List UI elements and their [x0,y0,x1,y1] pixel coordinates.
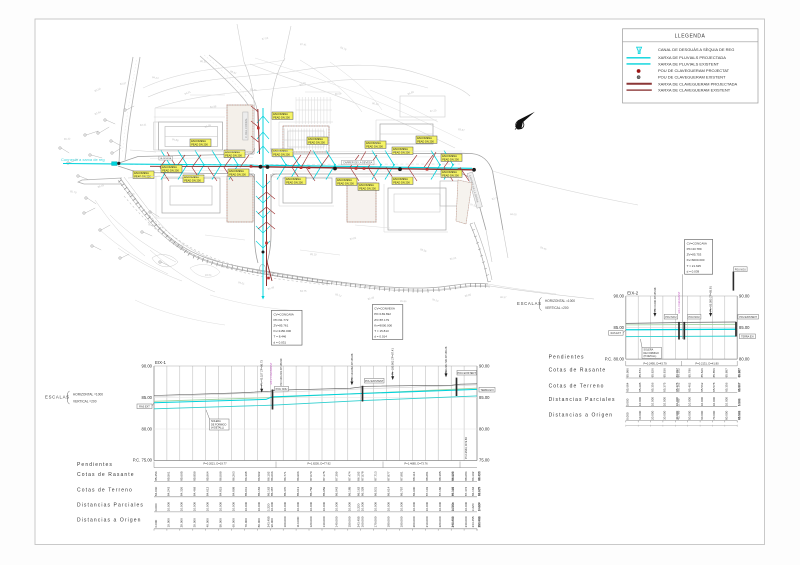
svg-text:RAS EXT: RAS EXT [139,406,150,409]
svg-text:Pk=43.327 ZP=86.73: Pk=43.327 ZP=86.73 [260,360,264,386]
svg-text:85.578: 85.578 [712,382,716,392]
svg-text:EIX-2 CREUAMENT: EIX-2 CREUAMENT [270,362,273,384]
svg-text:10.000: 10.000 [231,502,235,512]
svg-text:85.00: 85.00 [142,395,153,400]
svg-text:T = 15.813: T = 15.813 [374,329,389,333]
svg-text:(H DETALL): (H DETALL) [644,355,657,358]
svg-text:90.00: 90.00 [479,363,490,368]
svg-text:POU DE CLAVEGUERAM PROJECTAT: POU DE CLAVEGUERAM PROJECTAT [658,68,730,73]
svg-text:XARXA DE PLUVIALS PROJECTADA: XARXA DE PLUVIALS PROJECTADA [658,55,726,60]
svg-text:50.000: 50.000 [218,518,222,528]
svg-text:80.00: 80.00 [142,426,153,431]
svg-text:86.102: 86.102 [676,368,680,378]
svg-text:84.75: 84.75 [300,289,307,293]
svg-text:TERRA EXI: TERRA EXI [741,336,754,339]
svg-text:ZV=85.761: ZV=85.761 [274,324,289,328]
svg-text:86.102: 86.102 [267,471,271,481]
svg-text:243.455: 243.455 [267,516,271,527]
svg-text:85.867: 85.867 [738,382,742,392]
svg-text:85.356: 85.356 [650,382,654,392]
svg-text:50.000: 50.000 [688,410,692,420]
svg-text:XARXA DE CLAVEGUERAM PROJECTAD: XARXA DE CLAVEGUERAM PROJECTADA [658,81,738,86]
svg-text:87.309: 87.309 [335,471,339,481]
svg-text:243.455: 243.455 [471,516,475,527]
svg-text:30.000: 30.000 [193,518,197,528]
svg-text:CARRER DE LA DEVESA: CARRER DE LA DEVESA [343,162,373,165]
svg-text:85.986: 85.986 [626,368,630,378]
svg-text:Cotas de Terreno: Cotas de Terreno [77,487,133,493]
svg-text:190.000: 190.000 [399,516,403,527]
svg-text:Cotas de Rasante: Cotas de Rasante [77,472,135,478]
svg-text:P=0.2131, D=41.80: P=0.2131, D=41.80 [695,361,719,365]
svg-text:86.102: 86.102 [451,471,455,481]
svg-text:75.00: 75.00 [479,458,490,463]
svg-text:84.469: 84.469 [193,486,197,496]
svg-text:P=1.4685, D=73.76: P=1.4685, D=73.76 [404,462,428,466]
svg-text:PEAD DN 200: PEAD DN 200 [184,178,201,182]
svg-text:86.042: 86.042 [335,486,339,496]
svg-text:60.000: 60.000 [700,410,704,420]
svg-text:70.000: 70.000 [244,518,248,528]
svg-text:85.859: 85.859 [193,471,197,481]
svg-text:T = 8.446: T = 8.446 [274,335,287,339]
svg-text:80.00: 80.00 [479,426,490,431]
svg-text:3.220: 3.220 [357,503,361,511]
svg-text:PEAD DN 200: PEAD DN 200 [134,174,151,178]
svg-text:86.162: 86.162 [267,486,271,496]
svg-text:PK=91.772: PK=91.772 [274,318,289,322]
svg-text:POU NOU: POU NOU [735,269,746,272]
svg-text:43.789: 43.789 [676,410,680,420]
svg-text:PEAD DN 200: PEAD DN 200 [442,157,459,161]
svg-text:0.000: 0.000 [154,519,158,527]
svg-text:Pk=180.002 ZP=87.41: Pk=180.002 ZP=87.41 [391,348,395,375]
svg-text:30.000: 30.000 [663,410,667,420]
svg-text:10.000: 10.000 [206,502,210,512]
svg-text:70.000: 70.000 [712,410,716,420]
svg-text:85.887: 85.887 [725,368,729,378]
svg-text:Pk=100.219 ZP=86.90: Pk=100.219 ZP=86.90 [279,358,283,385]
svg-text:85.356: 85.356 [725,382,729,392]
svg-text:85.613: 85.613 [296,486,300,496]
svg-text:40.000: 40.000 [206,518,210,528]
svg-text:10.000: 10.000 [386,502,390,512]
svg-text:10.000: 10.000 [638,397,642,407]
svg-text:120.000: 120.000 [309,516,313,527]
svg-text:86.368: 86.368 [244,471,248,481]
svg-text:87.070: 87.070 [309,471,313,481]
svg-text:86.53: 86.53 [128,192,135,196]
svg-text:84.815: 84.815 [218,486,222,496]
svg-text:PEAD DN 200: PEAD DN 200 [191,142,208,146]
svg-text:3.789: 3.789 [676,398,680,406]
svg-text:85.295: 85.295 [638,382,642,392]
svg-text:87.186: 87.186 [438,486,442,496]
svg-text:86.102: 86.102 [471,471,475,481]
svg-text:253.455: 253.455 [478,516,482,527]
svg-text:10.000: 10.000 [257,502,261,512]
svg-text:Distancias a Origen: Distancias a Origen [549,412,614,418]
svg-text:85.856: 85.856 [712,368,716,378]
svg-text:P.C. 75.00: P.C. 75.00 [133,458,153,463]
svg-text:P=0.2495, D=43.79: P=0.2495, D=43.79 [643,361,667,365]
svg-text:XARXA DE CLAVEGUERAM EXISTENT: XARXA DE CLAVEGUERAM EXISTENT [658,88,731,93]
svg-text:10.000: 10.000 [373,502,377,512]
svg-text:20.000: 20.000 [650,410,654,420]
svg-text:85.00: 85.00 [614,325,625,330]
svg-text:85.826: 85.826 [700,368,704,378]
svg-text:P=2.3543, D=9.64: P=2.3543, D=9.64 [464,437,468,459]
svg-text:EIX-2: EIX-2 [627,290,639,295]
svg-text:85.19: 85.19 [310,252,317,256]
svg-text:Pendientes: Pendientes [77,462,113,468]
svg-text:87.578: 87.578 [361,471,365,481]
svg-text:CV=CONCAVA: CV=CONCAVA [274,312,294,316]
svg-text:10.000: 10.000 [167,518,171,528]
svg-text:87.20: 87.20 [430,108,437,113]
svg-text:XARXA DE PLUVIALS EXISTENT: XARXA DE PLUVIALS EXISTENT [658,61,719,66]
svg-text:POU NOU: POU NOU [276,388,288,391]
svg-text:3.220: 3.220 [451,503,455,511]
svg-text:Kv=1150.000: Kv=1150.000 [274,329,292,333]
svg-text:84.612: 84.612 [206,486,210,496]
svg-text:243.455: 243.455 [357,516,361,527]
svg-text:170.000: 170.000 [373,516,377,527]
svg-text:84.31: 84.31 [140,123,147,127]
svg-text:83.64: 83.64 [205,273,212,277]
svg-text:Kv=9000.000: Kv=9000.000 [374,323,392,327]
svg-text:85.756: 85.756 [309,486,313,496]
svg-text:0.000: 0.000 [626,398,630,406]
svg-text:PEAD DN 200: PEAD DN 200 [366,144,383,148]
svg-text:85.375: 85.375 [663,382,667,392]
svg-text:140.000: 140.000 [335,516,339,527]
svg-text:86.162: 86.162 [451,486,455,496]
svg-text:86.906: 86.906 [296,471,300,481]
svg-text:86.328: 86.328 [361,486,365,496]
svg-text:PEAD DN 200: PEAD DN 200 [229,172,246,176]
svg-text:85.00: 85.00 [479,395,490,400]
svg-text:3.220: 3.220 [267,503,271,511]
svg-text:86.099: 86.099 [218,471,222,481]
svg-text:d = 0.031: d = 0.031 [274,340,287,344]
svg-text:20.000: 20.000 [180,518,184,528]
svg-text:86.162: 86.162 [357,486,361,496]
svg-text:210.000: 210.000 [425,516,429,527]
svg-text:90.00: 90.00 [739,293,750,298]
svg-text:EIX-1: EIX-1 [155,360,167,365]
svg-text:PEAD DN 200: PEAD DN 200 [273,152,290,156]
svg-text:10.000: 10.000 [193,502,197,512]
svg-text:PEAD DN 200: PEAD DN 200 [162,168,179,172]
svg-text:84.243: 84.243 [167,486,171,496]
svg-text:80.000: 80.000 [257,518,261,528]
svg-text:85.907: 85.907 [738,368,742,378]
svg-text:88.281: 88.281 [425,471,429,481]
svg-text:85.959: 85.959 [322,486,326,496]
svg-text:POU NOU: POU NOU [665,316,676,319]
svg-text:85.826: 85.826 [650,368,654,378]
svg-text:10.000: 10.000 [244,502,248,512]
svg-text:86.162: 86.162 [471,486,475,496]
svg-text:80.000: 80.000 [725,410,729,420]
svg-text:HORIZONTAL =1000: HORIZONTAL =1000 [73,393,103,397]
svg-text:Cotas de Rasante: Cotas de Rasante [549,368,607,374]
svg-text:85.184: 85.184 [257,486,261,496]
svg-text:Pk=0.000 ZP=85.98: Pk=0.000 ZP=85.98 [653,287,657,311]
svg-text:10.000: 10.000 [425,502,429,512]
svg-text:240.000: 240.000 [464,516,468,527]
svg-text:60.000: 60.000 [231,518,235,528]
svg-text:85.456: 85.456 [154,471,158,481]
svg-text:POU EXISTENT: POU EXISTENT [739,316,757,319]
svg-text:Pendientes: Pendientes [549,355,585,361]
svg-text:86.757: 86.757 [399,486,403,496]
svg-text:220.000: 220.000 [438,516,442,527]
svg-text:87.175: 87.175 [322,471,326,481]
svg-text:Connexió a xarxa de reg: Connexió a xarxa de reg [61,157,105,162]
svg-text:P.C. 80.00: P.C. 80.00 [605,356,625,361]
svg-text:85.796: 85.796 [688,368,692,378]
svg-text:87.472: 87.472 [464,486,468,496]
svg-text:150.000: 150.000 [348,516,352,527]
svg-text:87.41: 87.41 [300,42,307,47]
svg-text:10.000: 10.000 [348,502,352,512]
svg-text:86.531: 86.531 [373,486,377,496]
svg-text:90.00: 90.00 [142,363,153,368]
svg-text:ZV=87.179: ZV=87.179 [374,318,389,322]
svg-text:84.326: 84.326 [180,486,184,496]
svg-text:0.000: 0.000 [154,503,158,511]
svg-text:Cotas de Terreno: Cotas de Terreno [549,383,605,389]
svg-text:CANAL DE DESGUÀS A SÈQUIA DE R: CANAL DE DESGUÀS A SÈQUIA DE REG [658,47,734,52]
svg-text:EIX-1 CREUAMENT: EIX-1 CREUAMENT [678,291,681,313]
svg-text:84.898: 84.898 [231,486,235,496]
svg-text:100.000: 100.000 [283,516,287,527]
svg-text:88.116: 88.116 [412,471,416,480]
svg-text:PEAD DN 200: PEAD DN 200 [359,186,376,190]
svg-text:85.462: 85.462 [688,382,692,392]
svg-text:85.695: 85.695 [180,471,184,481]
svg-text:90.00: 90.00 [614,293,625,298]
svg-text:POU EXISTENT: POU EXISTENT [365,380,384,383]
svg-text:C. DEL CORRAL: C. DEL CORRAL [244,118,248,138]
svg-text:ESCALAS: ESCALAS [517,301,542,306]
svg-text:ZV=85.753: ZV=85.753 [687,253,702,257]
svg-text:86.30: 86.30 [200,59,207,64]
svg-text:85.470: 85.470 [283,486,287,496]
svg-text:85.561: 85.561 [167,471,171,481]
svg-text:HORIZONTAL =1000: HORIZONTAL =1000 [545,299,575,303]
svg-text:10.000: 10.000 [167,502,171,512]
svg-text:10.000: 10.000 [412,502,416,512]
svg-text:85.041: 85.041 [244,486,248,496]
svg-text:RAS EXT: RAS EXT [611,332,622,335]
svg-text:87.713: 87.713 [373,471,377,481]
svg-text:88.385: 88.385 [438,471,442,481]
svg-text:87.103: 87.103 [425,486,429,496]
svg-text:Distancias Parciales: Distancias Parciales [549,397,616,403]
svg-text:POU NOU: POU NOU [689,316,700,319]
svg-text:10.000: 10.000 [712,397,716,407]
svg-text:LA DEVESA: LA DEVESA [160,157,172,160]
svg-text:2.450: 2.450 [478,503,482,511]
svg-text:88.423: 88.423 [478,471,482,481]
svg-text:Kv=6000.000: Kv=6000.000 [687,258,705,262]
svg-text:243.455: 243.455 [451,516,455,527]
svg-text:85.836: 85.836 [663,368,667,378]
svg-text:10.000: 10.000 [180,502,184,512]
svg-text:10.000: 10.000 [438,502,442,512]
svg-text:200.000: 200.000 [412,516,416,527]
svg-text:86.97: 86.97 [500,295,507,299]
svg-text:85.684: 85.684 [626,382,630,392]
svg-text:VERTICAL =200: VERTICAL =200 [545,306,569,310]
svg-text:LLEGENDA: LLEGENDA [675,34,706,40]
svg-text:10.000: 10.000 [650,397,654,407]
svg-text:10.000: 10.000 [309,502,313,512]
svg-text:86.185: 86.185 [348,486,352,496]
svg-text:PK=169.692: PK=169.692 [374,312,391,316]
svg-text:PK=43.789: PK=43.789 [687,247,702,251]
svg-text:10.000: 10.000 [322,502,326,512]
svg-text:PEAD DN 200: PEAD DN 200 [286,180,303,184]
svg-text:0.000: 0.000 [626,412,630,420]
svg-text:110.000: 110.000 [296,516,300,527]
svg-text:86.162: 86.162 [676,382,680,392]
svg-text:10.000: 10.000 [399,502,403,512]
svg-text:87.877: 87.877 [386,471,390,481]
svg-text:POU EXISTENT: POU EXISTENT [458,372,477,375]
svg-text:86.614: 86.614 [386,486,390,496]
svg-text:84.08: 84.08 [510,212,517,216]
svg-text:85.562: 85.562 [700,382,704,392]
svg-text:PEAD DN 200: PEAD DN 200 [308,140,325,144]
svg-text:PEAD DN 200: PEAD DN 200 [417,139,434,143]
svg-text:86.102: 86.102 [357,471,361,481]
svg-text:85.86: 85.86 [400,299,407,303]
svg-text:84.040: 84.040 [154,486,158,496]
svg-text:Pk=103.882 ZP=86.86: Pk=103.882 ZP=86.86 [350,353,354,380]
svg-text:d = 0.039: d = 0.039 [687,269,700,273]
svg-text:80.00: 80.00 [739,356,750,361]
svg-text:86.502: 86.502 [257,471,261,481]
svg-text:88.684: 88.684 [464,471,468,481]
svg-text:10.000: 10.000 [700,397,704,407]
svg-text:87.474: 87.474 [348,471,352,481]
svg-text:PEAD DN 200: PEAD DN 200 [273,115,290,119]
svg-text:T = 21.625: T = 21.625 [687,264,702,268]
svg-text:PEAD DN 200: PEAD DN 200 [337,181,354,185]
svg-text:85.964: 85.964 [206,471,210,481]
svg-text:TERRA EXI: TERRA EXI [480,389,493,392]
svg-text:130.000: 130.000 [322,516,326,527]
svg-text:10.000: 10.000 [296,502,300,512]
svg-text:85.873: 85.873 [638,368,642,378]
svg-text:10.000: 10.000 [663,397,667,407]
svg-text:85.593: 85.593 [738,410,742,420]
svg-text:3.220: 3.220 [471,503,475,511]
svg-text:85.00: 85.00 [739,325,750,330]
svg-text:P=1.8205, D=77.92: P=1.8205, D=77.92 [307,462,331,466]
svg-text:86.263: 86.263 [231,471,235,481]
svg-text:d = 0.014: d = 0.014 [374,335,387,339]
svg-text:10.000: 10.000 [688,397,692,407]
svg-text:5.593: 5.593 [738,398,742,406]
svg-text:10.000: 10.000 [638,410,642,420]
svg-text:180.000: 180.000 [386,516,390,527]
svg-text:P=0.2021, D=19.77: P=0.2021, D=19.77 [203,462,227,466]
svg-text:CV=CONCAVA: CV=CONCAVA [687,241,707,245]
svg-text:10.000: 10.000 [283,502,287,512]
svg-text:10.000: 10.000 [335,502,339,512]
svg-text:(H DETALL): (H DETALL) [211,427,224,430]
svg-text:87.981: 87.981 [399,471,403,481]
svg-text:Pk=85.593 ZP=85.91: Pk=85.593 ZP=85.91 [709,286,713,312]
svg-text:VERTICAL =200: VERTICAL =200 [73,400,97,404]
svg-text:10.000: 10.000 [464,502,468,512]
svg-text:Distancias Parciales: Distancias Parciales [77,502,144,508]
svg-text:10.000: 10.000 [218,502,222,512]
svg-text:86.771: 86.771 [283,471,287,481]
svg-text:160.000: 160.000 [361,516,365,527]
svg-text:10.000: 10.000 [361,502,365,512]
svg-text:PEAD DN 200: PEAD DN 200 [225,153,242,157]
svg-text:10.000: 10.000 [725,397,729,407]
svg-text:CV=CONVEXA: CV=CONVEXA [374,307,395,311]
svg-text:ESCALAS: ESCALAS [45,395,70,400]
svg-text:85.42: 85.42 [64,137,71,141]
svg-text:88.027: 88.027 [478,486,482,496]
svg-text:86.900: 86.900 [412,486,416,496]
svg-text:Distancias a Origen: Distancias a Origen [77,518,142,524]
svg-text:POU DE CLAVEGUERAM EXISTENT: POU DE CLAVEGUERAM EXISTENT [658,75,726,80]
svg-text:PEAD DN 200: PEAD DN 200 [393,180,410,184]
